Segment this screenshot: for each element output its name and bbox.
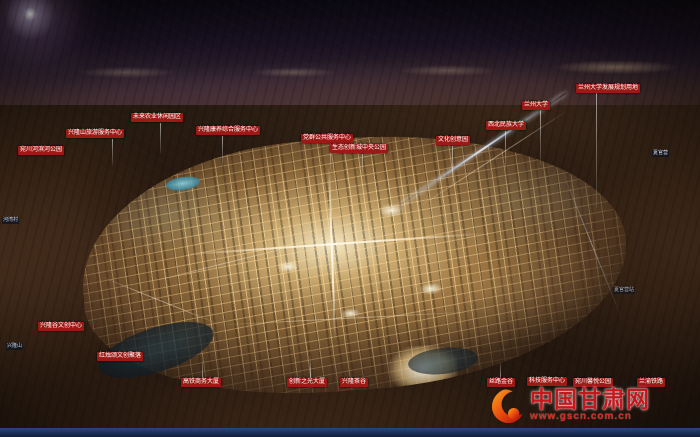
watermark-url: www.gscn.com.cn [530, 411, 650, 422]
leader-line [540, 110, 541, 165]
place-badge-xinglongshan: 兴隆山 [6, 343, 23, 350]
leader-line [202, 360, 203, 378]
map-label-hsr-business-tower: 高铁商务大厦 [181, 378, 221, 387]
map-label-kangyang-service-center: 兴隆康养综合服务中心 [196, 126, 260, 135]
map-label-future-agriculture-park: 未来农业休闲园区 [131, 113, 183, 122]
leader-line [500, 362, 501, 378]
place-badge-xiaguanying-station: 夏官营站 [613, 287, 635, 294]
map-label-lzu-development-area: 兰州大学发展规划用地 [576, 84, 640, 93]
bottom-blue-band [0, 428, 700, 437]
leader-line [160, 123, 161, 153]
map-label-wanchuan-xinyue-park: 宛川馨悦公园 [573, 378, 613, 387]
map-label-central-park: 生态创新城中央公园 [330, 144, 388, 153]
map-label-tech-service-center: 科技服务中心 [527, 377, 567, 386]
leader-line [112, 139, 113, 165]
aerial-planning-rendering: 宛川河滨河公园 兴隆山旅游服务中心 未来农业休闲园区 兴隆康养综合服务中心 党群… [0, 0, 700, 437]
place-badge-hewan-village: 河湾村 [2, 217, 19, 224]
map-label-lanyu-railway: 兰渝铁路 [637, 378, 665, 387]
map-label-northwest-minzu-university: 西北民族大学 [486, 121, 526, 130]
map-label-wenchuang-center: 兴隆谷文创中心 [38, 322, 84, 331]
map-label-xinglongshan-tourism-center: 兴隆山旅游服务中心 [66, 129, 124, 138]
place-badge-xiaguanying: 夏官营 [652, 150, 669, 157]
map-label-silkroad-gold-valley: 丝路金谷 [487, 378, 515, 387]
leader-line [310, 356, 311, 378]
leader-line [505, 131, 506, 171]
map-label-innovation-light-tower: 创新之光大厦 [287, 378, 327, 387]
leader-line [222, 136, 223, 166]
map-label-lanzhou-university: 兰州大学 [522, 101, 550, 110]
watermark-site-name: 中国甘肃网 [530, 388, 650, 412]
map-label-hongzhusong-cluster: 红烛颂文创聚落 [97, 352, 143, 361]
map-label-xinglong-tea-valley: 兴隆茶谷 [340, 378, 368, 387]
leader-line [452, 146, 453, 184]
gansu-flame-swirl-icon [488, 388, 528, 426]
map-label-culture-creative-park: 文化创意园 [436, 136, 470, 145]
map-label-wanchuan-river-park: 宛川河滨河公园 [18, 146, 64, 155]
site-watermark: 中国甘肃网 www.gscn.com.cn [488, 388, 650, 426]
map-label-public-service-center: 党群公共服务中心 [301, 134, 353, 143]
leader-line [362, 154, 363, 174]
leader-line [596, 93, 597, 208]
watermark-text: 中国甘肃网 www.gscn.com.cn [530, 388, 650, 422]
